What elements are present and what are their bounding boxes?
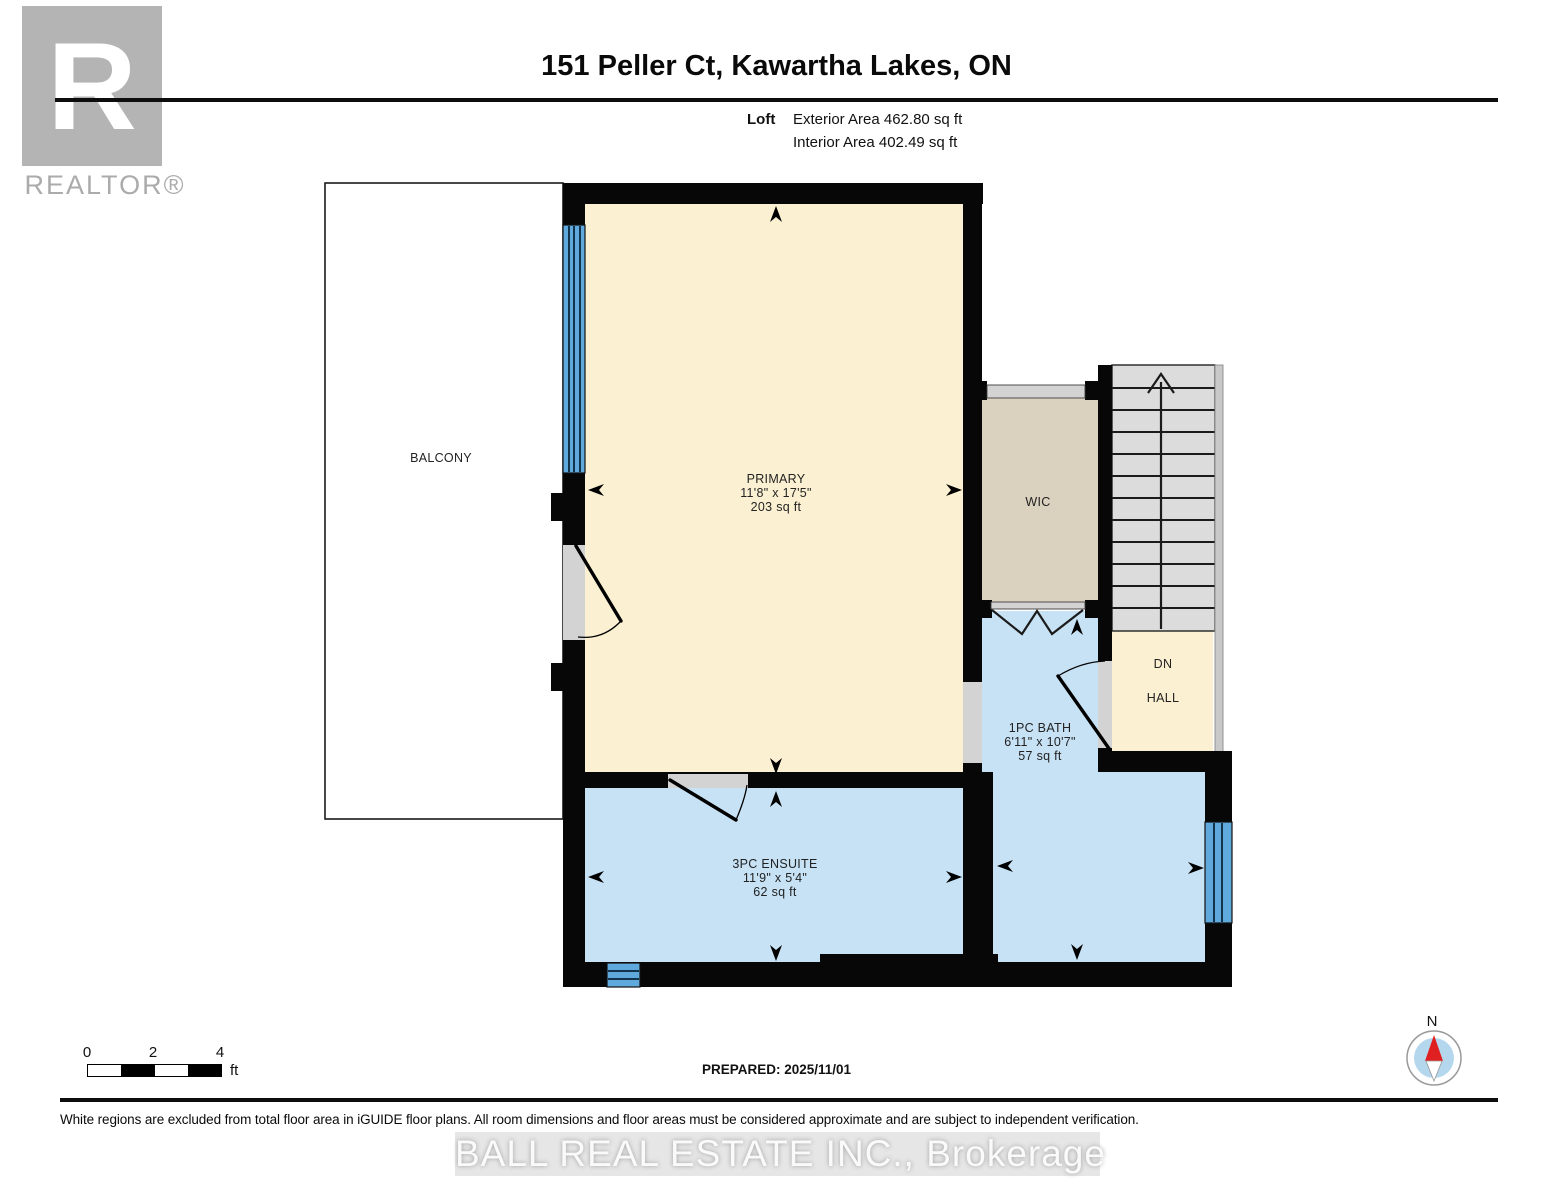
primary-window	[563, 225, 585, 473]
ensuite-window	[607, 963, 640, 987]
wall-wic-bottom-left-tab	[980, 600, 992, 618]
compass-north-label: N	[1427, 1013, 1438, 1030]
primary-label: PRIMARY	[747, 472, 806, 486]
bath-area: 57 sq ft	[1018, 749, 1062, 763]
disclaimer-text: White regions are excluded from total fl…	[60, 1112, 1139, 1127]
balcony-door-opening	[563, 545, 585, 640]
ensuite-label: 3PC ENSUITE	[732, 857, 817, 871]
primary-bath-opening	[963, 682, 982, 763]
primary-dims: 11'8" x 17'5"	[740, 486, 812, 500]
primary-area: 203 sq ft	[751, 500, 802, 514]
balcony-label: BALCONY	[410, 451, 472, 465]
hall-dn-label: DN	[1154, 657, 1173, 671]
scale-tick-2: 2	[149, 1044, 157, 1061]
prepared-date: PREPARED: 2025/11/01	[0, 1062, 1553, 1077]
floorplan-page: R REALTOR® 151 Peller Ct, Kawartha Lakes…	[0, 0, 1553, 1200]
footer-divider	[60, 1098, 1498, 1102]
bath-dims: 6'11" x 10'7"	[1004, 735, 1076, 749]
wall-wic-top-left-tab	[975, 381, 987, 400]
hall-label: HALL	[1147, 691, 1179, 705]
wic-top-shelf	[987, 385, 1085, 398]
bath-label: 1PC BATH	[1009, 721, 1072, 735]
wall-primary-ensuite	[563, 772, 983, 788]
wall-pilaster-upper	[551, 493, 565, 521]
scale-tick-4: 4	[216, 1044, 224, 1061]
bath-window	[1205, 822, 1232, 923]
wall-wic-bottom-right-tab	[1085, 600, 1112, 618]
wall-primary-top	[563, 183, 983, 204]
bath-region-lower	[993, 768, 1205, 964]
brokerage-watermark: BALL REAL ESTATE INC., Brokerage	[455, 1132, 1100, 1176]
wall-ensuite-bottom-step	[820, 954, 998, 966]
floorplan-drawing: BALCONY PRIMARY 11'8" x 17'5" 203 sq ft …	[0, 0, 1553, 1200]
wall-pilaster-lower	[551, 663, 565, 691]
wic-label: WIC	[1025, 495, 1050, 509]
ensuite-dims: 11'9" x 5'4"	[743, 871, 807, 885]
wic-bottom-shelf	[991, 602, 1085, 609]
balcony-region	[325, 183, 563, 819]
scale-tick-0: 0	[83, 1044, 91, 1061]
stair-side-strip	[1215, 365, 1223, 753]
ensuite-area: 62 sq ft	[753, 885, 797, 899]
